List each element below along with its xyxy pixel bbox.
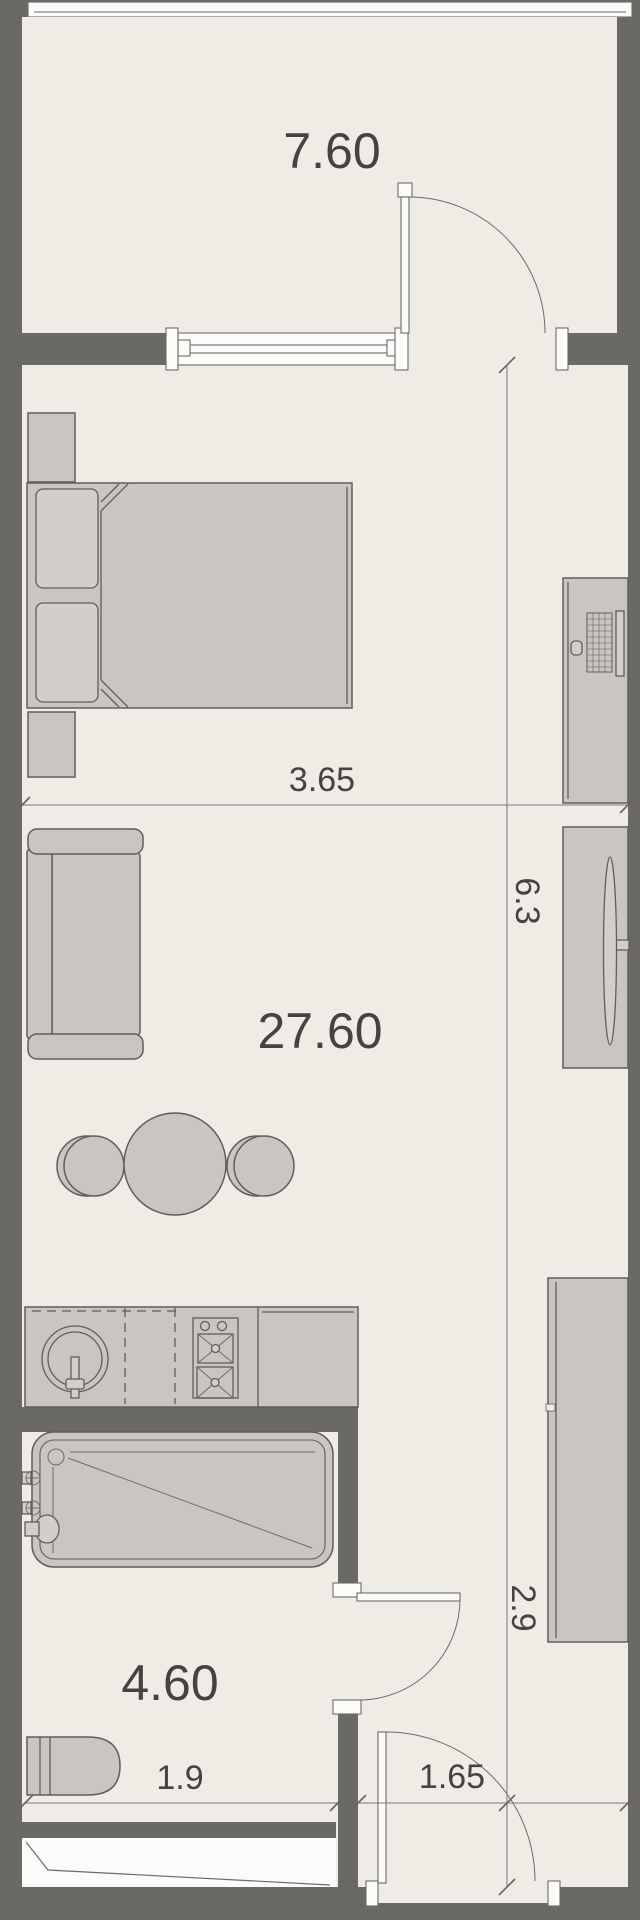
faucet: [71, 1357, 79, 1398]
bed: [27, 483, 352, 708]
nightstand-top: [28, 413, 75, 482]
pillow-bottom: [36, 603, 98, 702]
floor-plan: 7.60 27.60 4.60 3.65 6.3 2.9 1.9 1.65: [0, 0, 640, 1920]
kitchen-counter: [25, 1307, 358, 1407]
entry-opening: [378, 1887, 548, 1903]
dim-bathroom-width: 1.9: [156, 1759, 203, 1797]
monitor: [616, 611, 624, 676]
pillow-top: [36, 489, 98, 588]
tv: [604, 857, 617, 1045]
sofa: [27, 829, 143, 1059]
mouse: [571, 641, 582, 655]
window-jamb-right: [395, 328, 408, 370]
living-room-area-label: 27.60: [257, 1003, 382, 1059]
dim-hall-length: 2.9: [504, 1584, 542, 1631]
balcony-area-label: 7.60: [283, 123, 380, 179]
tv-bracket: [616, 940, 629, 950]
dim-hall-width: 1.65: [419, 1758, 485, 1796]
balcony-door-jamb: [556, 328, 568, 370]
bathroom-area-label: 4.60: [121, 1655, 218, 1711]
window: [178, 333, 397, 365]
window-jamb-left: [166, 328, 178, 370]
bathroom-bottom-wall: [22, 1822, 336, 1838]
entry-jamb-right: [548, 1881, 560, 1906]
dim-living-length: 6.3: [508, 877, 546, 924]
wardrobe: [546, 1278, 628, 1642]
desk: [563, 578, 628, 803]
floor-plan-canvas: 7.60 27.60 4.60 3.65 6.3 2.9 1.9 1.65: [0, 0, 640, 1920]
tv-console: [563, 827, 629, 1068]
balcony-door-opening: [408, 333, 556, 365]
bathroom-door-jamb-bottom: [333, 1700, 361, 1714]
bathtub: [32, 1432, 333, 1567]
exterior-niche: [22, 1838, 336, 1887]
nightstand-bottom: [28, 712, 75, 777]
dim-living-width: 3.65: [289, 761, 355, 799]
keyboard: [587, 613, 612, 672]
toilet: [27, 1737, 120, 1795]
balcony-railing: [28, 2, 632, 17]
bathroom-top-wall: [22, 1407, 358, 1432]
bathroom-door-opening: [338, 1597, 358, 1700]
entry-jamb-left: [366, 1881, 378, 1906]
